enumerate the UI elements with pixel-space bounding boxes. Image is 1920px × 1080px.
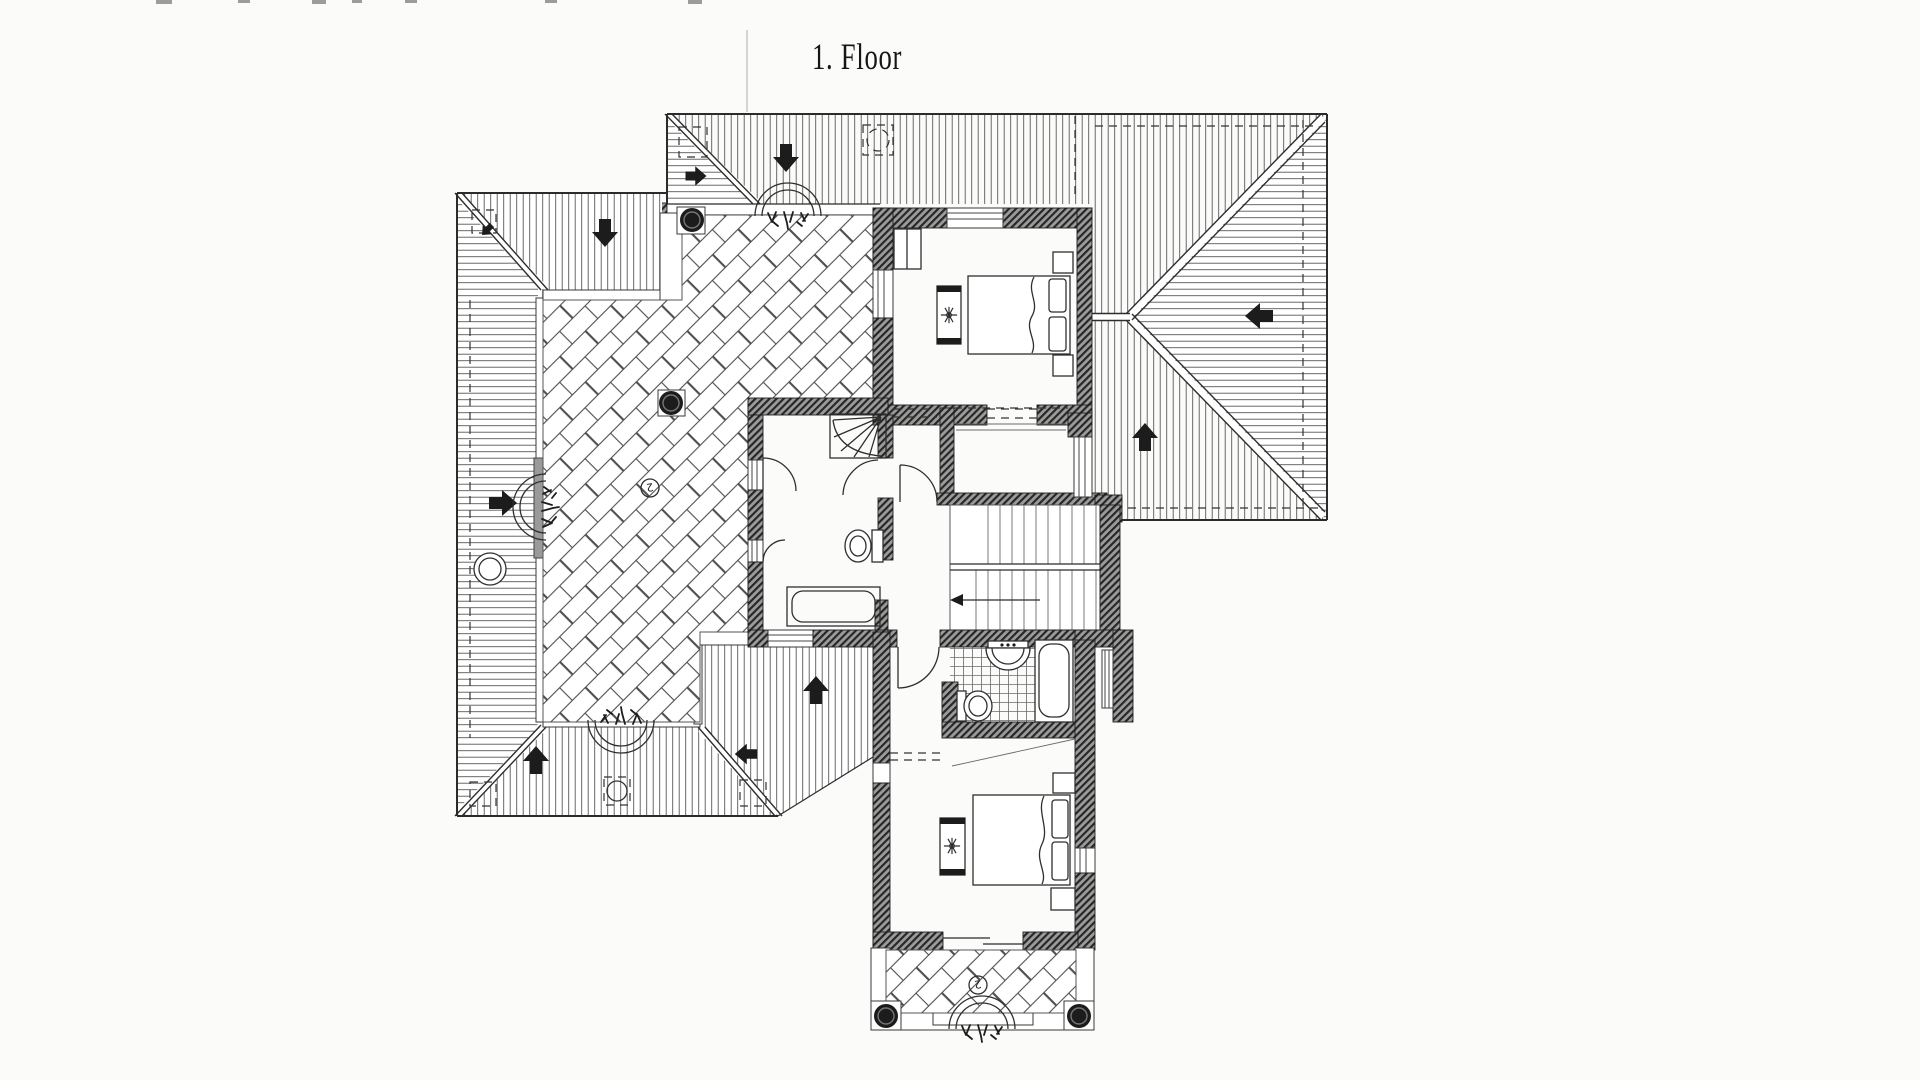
scan-artifacts [156,0,702,4]
bed [973,795,1070,885]
window [748,460,763,490]
dresser [1051,888,1075,910]
floor-plan-page: 1. Floor [0,0,1920,1080]
floor-plan-drawing: 2 [0,0,1920,1080]
window [873,270,893,318]
toilet [845,530,883,562]
column-icon [677,207,705,234]
door-swing [763,540,785,562]
door-swing [843,460,878,495]
window [947,208,1003,228]
window [1102,650,1113,708]
ceiling-slope-line [952,739,1075,766]
window [1075,848,1095,873]
door-swing [898,647,939,688]
sliding-door [943,938,1023,944]
nightstand [1053,355,1073,376]
column-icon [658,390,685,416]
rug [940,818,965,875]
nightstand [1053,252,1073,273]
balcony: 2 [871,948,1094,1042]
door-swing [900,465,937,502]
column-icon [871,1001,901,1030]
window [748,540,763,562]
window [768,630,813,647]
door-swing [763,458,796,491]
rug [937,286,961,344]
window [1074,437,1092,497]
balcony-step [933,1013,1033,1025]
roof-top [647,30,1327,216]
nightstand [1053,773,1075,793]
bathroom-small [888,630,1075,738]
niche [873,763,890,783]
bathroom-main [748,398,893,647]
bathtub [1035,640,1073,722]
bedroom-top [873,208,1092,425]
chimney-icon [474,553,506,585]
bed [968,276,1070,354]
toilet [957,691,992,721]
column-icon [1064,1001,1094,1030]
bathtub [787,587,880,626]
